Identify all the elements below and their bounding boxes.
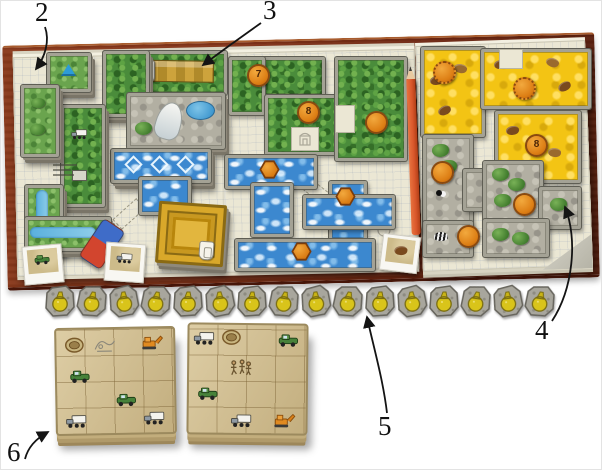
money-pouch-token [45,285,75,317]
pit-icon [221,329,241,346]
savanna-number-token: 8 [525,134,548,157]
bush-blob [432,144,449,157]
supply-temple-tile [155,201,227,268]
supply-tall-green-tile-stack [61,105,105,207]
rock-number-token [513,193,536,216]
callout-5-label: 5 [378,411,392,442]
callout-4-label: 4 [535,315,549,346]
bush-blob [512,232,529,245]
player-board-stack-1 [54,326,177,436]
money-pouch-token [429,285,459,317]
callout-2-label: 2 [35,0,49,28]
jungle-number-token: 7 [247,64,270,87]
money-pouch-token [75,283,109,319]
photo-card-jeep [21,243,64,285]
money-pouch-token [107,283,141,318]
plant-blob [30,124,45,135]
savanna-tile-1 [421,47,485,137]
jeep-icon [33,253,51,265]
monument-doodle [296,130,314,148]
player-board-stack-2 [186,322,308,435]
bush-blob [494,194,511,207]
jeep-icon [277,333,299,347]
bush-blob [550,198,567,211]
diamond-marker [124,155,142,173]
excavator-icon [272,411,296,429]
money-pouch-token [267,283,301,319]
plant-blob [31,98,45,108]
photo-card-truck [104,242,147,284]
pool-icon [186,101,215,120]
water-tile-t-stem [251,183,293,237]
photo-card-animal [379,233,421,274]
savanna-number-token [513,77,536,100]
money-pouch-token [139,283,173,319]
photo-image [27,248,59,275]
jungle-number-token: 8 [297,101,320,124]
bush-tile-3 [483,219,549,257]
photo-image [109,246,141,272]
truck-icon [66,413,88,428]
truck-icon [71,128,88,140]
excavator-icon [140,333,164,351]
animal-blob [394,245,408,256]
animal-blob [547,146,562,158]
bush-blob [492,168,509,181]
bush-blob [508,178,525,191]
jungle-number-token [365,111,388,134]
truck-icon [116,251,134,264]
savanna-number-token [433,61,456,84]
supply-waterfall-tile-stack [127,93,225,149]
money-pouch-token [299,283,333,318]
diamond-marker [150,155,168,173]
supply-plant-tile-stack [21,85,59,157]
truck-icon [193,330,215,345]
animal-blob [506,126,519,135]
truck-icon [144,410,166,425]
animal-blob [557,80,572,93]
callout-3-label: 3 [263,0,277,26]
money-pouch-token [203,283,237,318]
game-setup-photo: 7 8 8 [0,0,602,470]
tent-icon [61,64,76,76]
animal-blob [545,56,561,70]
rock-number-token [457,225,480,248]
callout-5-arrow [367,317,387,413]
callout-6-label: 6 [7,437,21,468]
money-token-row [45,285,561,319]
jeep-icon [197,386,219,400]
money-pouch-token [331,283,365,319]
shield-badge-icon [198,241,214,261]
pit-icon [64,337,84,354]
bush-blob [135,122,152,135]
bush-tile-1 [483,161,543,223]
zebra-icon [434,232,448,241]
river-icon [30,227,96,238]
money-pouch-token [395,283,429,318]
bush-blob [492,228,509,241]
jeep-icon [69,369,91,383]
money-pouch-token [237,285,267,317]
savanna-tile-2-notch [499,49,523,69]
money-pouch-token [491,283,525,318]
supply-legend-marks [53,161,77,179]
money-pouch-token [365,285,395,317]
waterfall-icon [151,99,186,143]
jeep-icon [115,393,137,407]
animal-blob [437,104,452,116]
diamond-marker [176,155,194,173]
sketch-doodle-icon [92,335,116,354]
penguin-dots [436,190,442,196]
jungle-tile-3-notch [335,105,355,133]
money-pouch-token [523,283,557,319]
money-pouch-token [459,283,493,319]
photo-image [385,237,416,264]
jungle-tile-2-notch [291,127,319,151]
workers-icon [229,359,253,376]
rock-number-token [431,161,454,184]
savanna-tile-2 [481,49,591,109]
callout-6-arrow [25,432,48,459]
money-pouch-token [173,285,203,317]
truck-icon [230,413,252,428]
